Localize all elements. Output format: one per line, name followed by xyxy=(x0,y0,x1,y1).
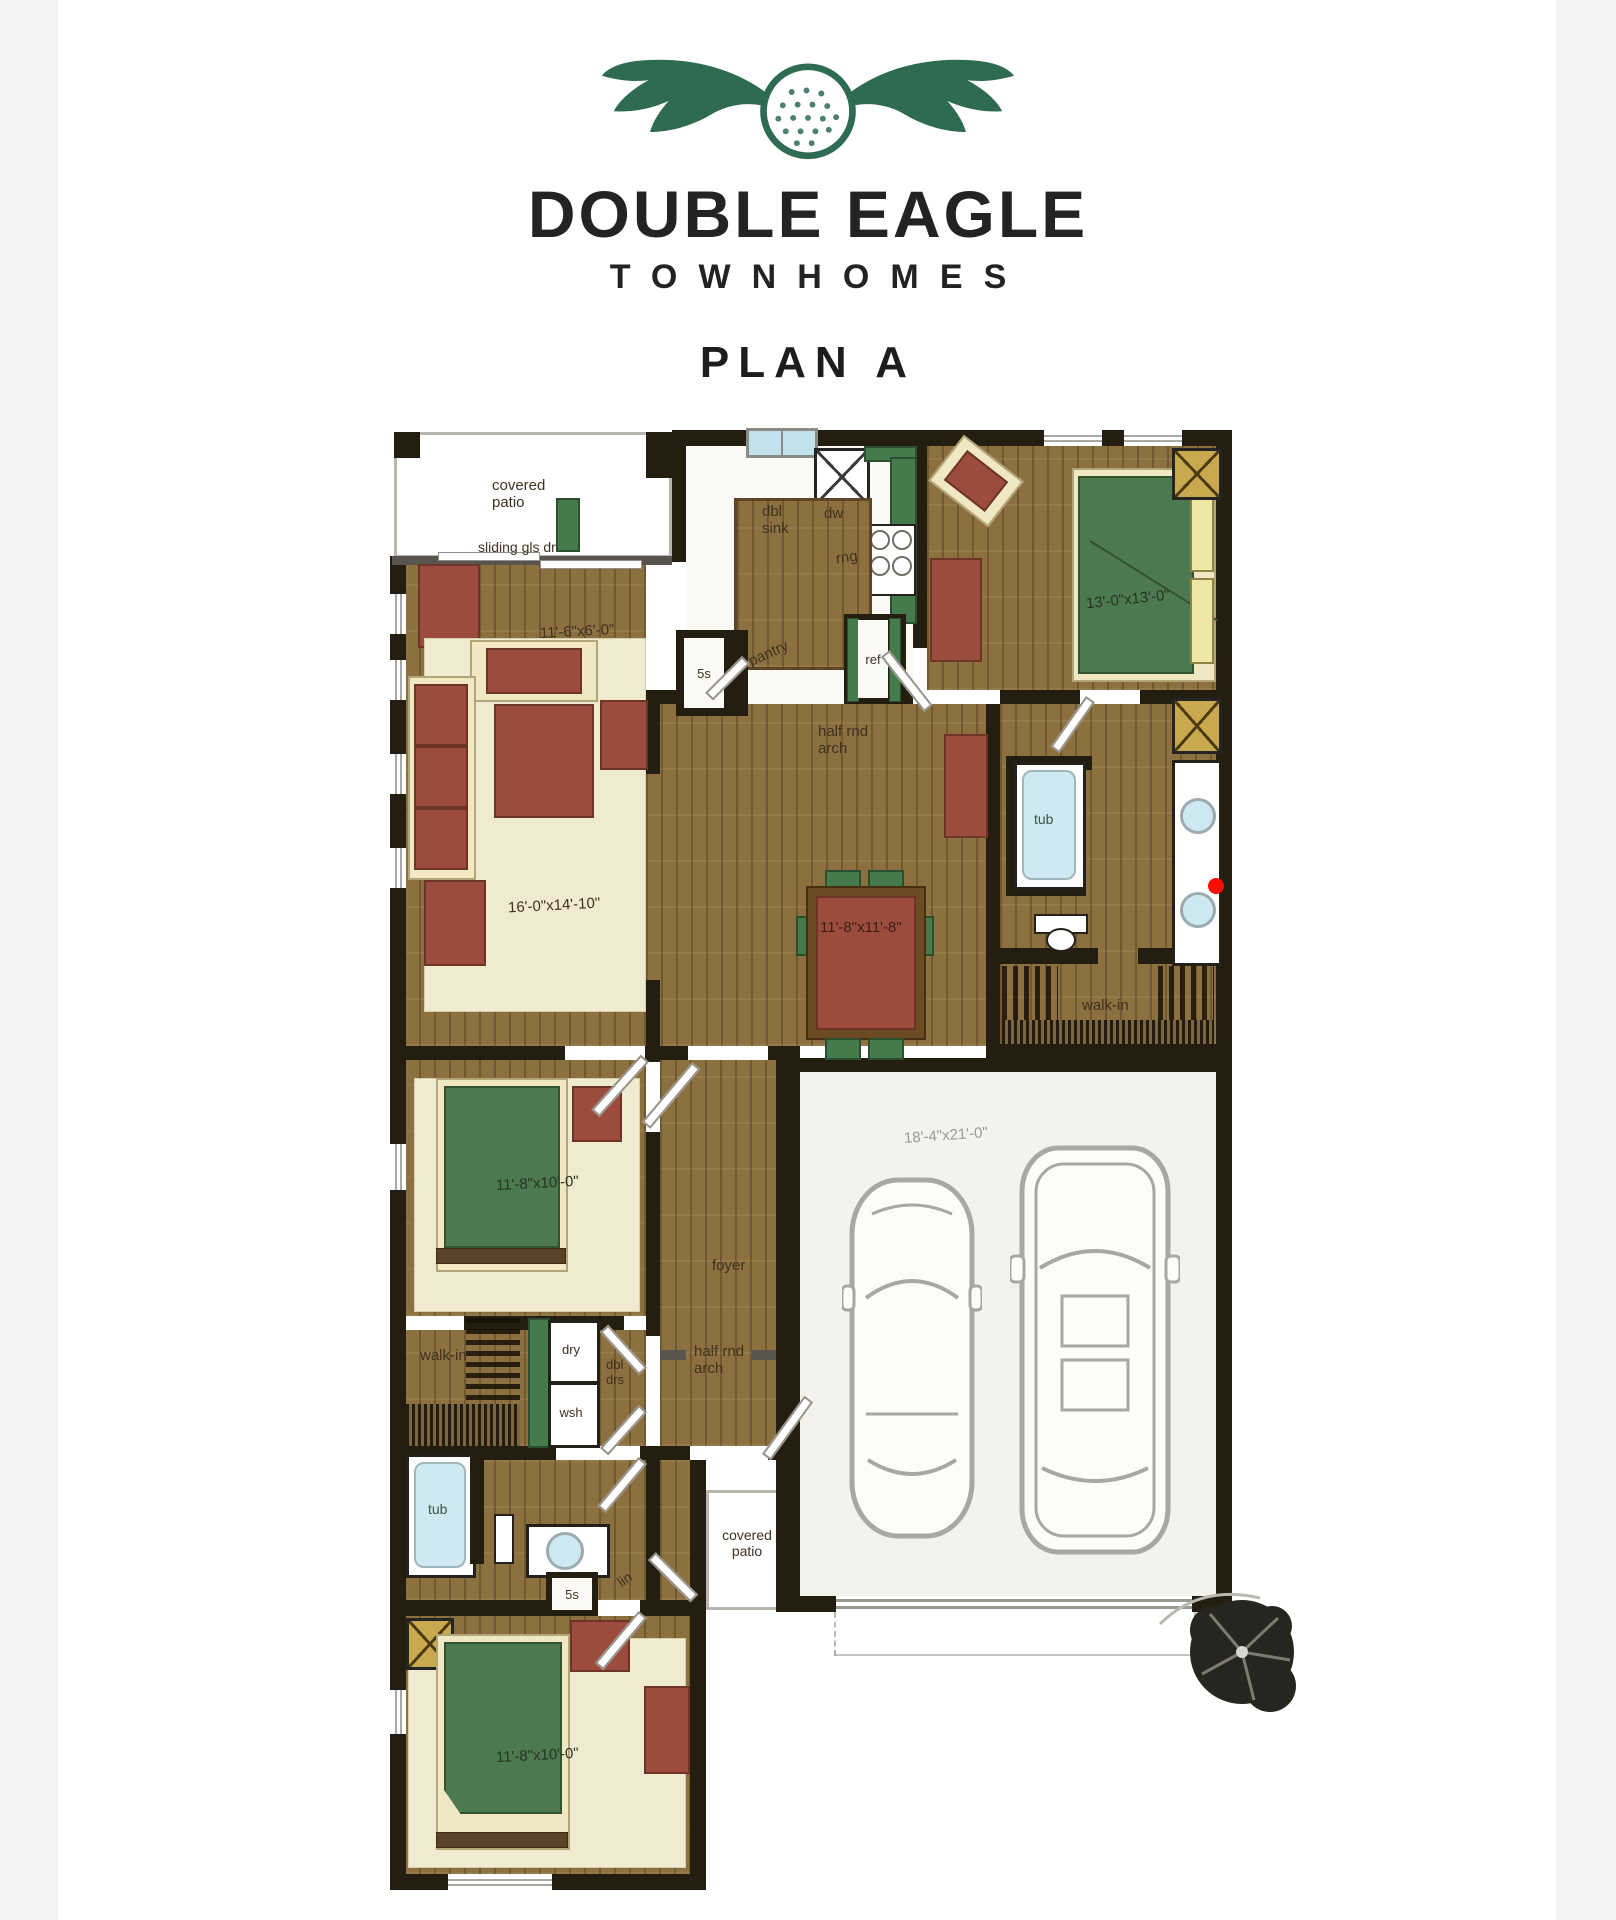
burner-icon xyxy=(892,530,912,550)
wall-patio-kitchen xyxy=(672,430,686,562)
coffee-table xyxy=(494,704,594,818)
wall-post xyxy=(394,432,420,458)
living-window xyxy=(390,848,406,888)
hanging-clothes xyxy=(1002,1020,1214,1044)
wall-bedroom2-top xyxy=(645,1046,660,1060)
living-window xyxy=(390,660,406,700)
bath2-sink xyxy=(546,1532,584,1570)
dining-dimensions: 11'-8"x11'-8" xyxy=(820,920,902,937)
garage-door xyxy=(836,1599,1192,1602)
wall-hall-top xyxy=(768,1046,776,1060)
washer-label: wsh xyxy=(548,1382,594,1442)
nook-window xyxy=(390,594,406,634)
brand-subtitle: TOWNHOMES xyxy=(0,258,1616,297)
foyer-label: foyer xyxy=(712,1258,745,1275)
dining-chair xyxy=(825,1038,861,1060)
wall-masterbath-top xyxy=(1000,690,1080,704)
foyer-arch-label: half rndarch xyxy=(694,1344,744,1378)
wall-hall-patio xyxy=(690,1460,706,1600)
sofa-cushion xyxy=(414,746,468,808)
kitchen-window xyxy=(746,428,818,458)
half-round-arch-label: half rndarch xyxy=(818,724,868,758)
wall-garage-bottom xyxy=(800,1596,836,1612)
wall-bedroom2-top xyxy=(390,1046,565,1060)
toilet xyxy=(494,1514,514,1564)
burner-icon xyxy=(892,556,912,576)
wall-hall-top xyxy=(660,1046,688,1060)
tv xyxy=(486,648,582,694)
dining-table-top xyxy=(816,896,916,1030)
bedroom3-bed xyxy=(444,1642,562,1814)
armchair xyxy=(424,880,486,966)
shelves-label: 5s xyxy=(684,638,724,708)
hanging-clothes xyxy=(406,1404,520,1446)
wall-hall-left xyxy=(646,1132,660,1336)
vanity-sink xyxy=(1180,892,1216,928)
burner-icon xyxy=(870,556,890,576)
living-window xyxy=(390,754,406,794)
sofa-cushion xyxy=(414,684,468,746)
dining-hutch xyxy=(944,734,988,838)
bedroom3-bottom-window xyxy=(448,1874,552,1890)
laundry-side-panel xyxy=(528,1318,550,1448)
wall-tub-divider xyxy=(470,1454,484,1564)
master-bed xyxy=(1078,476,1194,674)
wall-arch-stub xyxy=(660,1350,686,1360)
wall-bedroom3-right xyxy=(690,1600,706,1890)
wall-garage-top xyxy=(800,1058,1216,1072)
brand-name: DOUBLE EAGLE xyxy=(0,176,1616,252)
wall-post xyxy=(646,432,674,478)
dbl-sink-label: dblsink xyxy=(762,504,789,538)
pillow xyxy=(1190,578,1214,664)
dbl-doors-label: dbldrs xyxy=(606,1358,624,1387)
dishwasher-label: dw xyxy=(824,506,843,523)
bedroom3-headboard xyxy=(436,1832,568,1848)
sliding-door-panel xyxy=(540,560,642,569)
plan-title: PLAN A xyxy=(0,338,1616,388)
master-nightstand xyxy=(1172,448,1222,500)
wall-bedroom3-top xyxy=(640,1600,706,1616)
master-nightstand xyxy=(1172,698,1222,754)
wall-arch-stub xyxy=(752,1350,776,1360)
wall-stub xyxy=(646,704,660,774)
bedroom3-window xyxy=(390,1690,406,1734)
toilet-bowl xyxy=(1046,928,1076,952)
foyer-floor xyxy=(660,1060,776,1446)
bath2-shelves-label: 5s xyxy=(552,1578,592,1610)
wall-right-outer xyxy=(1216,430,1232,1612)
wall-bath2-right xyxy=(646,1460,660,1600)
master-dresser xyxy=(930,558,982,662)
red-marker-dot xyxy=(1208,878,1224,894)
wall-garage-left xyxy=(776,1046,800,1612)
covered-patio-top-label: coveredpatio xyxy=(492,478,545,512)
dining-chair xyxy=(868,1038,904,1060)
master-window xyxy=(1044,430,1102,446)
range-label: rng xyxy=(835,549,859,569)
tree-icon xyxy=(1150,1564,1314,1744)
winged-golf-ball-logo xyxy=(593,34,1023,184)
bedroom2-window xyxy=(390,1144,406,1190)
nook-plant xyxy=(556,498,580,552)
garage-apron-line xyxy=(834,1654,1196,1656)
covered-patio-bottom-label: coveredpatio xyxy=(718,1528,776,1559)
vanity-sink xyxy=(1180,798,1216,834)
master-tub-label: tub xyxy=(1034,812,1053,828)
walkin2-label: walk-in xyxy=(420,1348,467,1365)
accent-chair xyxy=(600,700,648,770)
wall-bedroom3-top xyxy=(390,1600,556,1616)
wall-stub xyxy=(646,980,660,1046)
sofa-cushion xyxy=(414,808,468,870)
nook-cabinet xyxy=(418,564,480,648)
bath2-tub-label: tub xyxy=(428,1502,447,1518)
car-suv xyxy=(1010,1138,1180,1562)
wall-masterbath-bottom xyxy=(1000,948,1098,964)
master-vanity xyxy=(1172,760,1222,966)
master-window xyxy=(1124,430,1182,446)
dryer-label: dry xyxy=(548,1320,594,1378)
bedroom2-bed xyxy=(444,1086,560,1248)
garage-door xyxy=(836,1606,1192,1609)
wall-dining-masterbath xyxy=(986,704,1000,1046)
sliding-door-label: sliding gls dr xyxy=(478,540,556,556)
bedroom3-dresser xyxy=(644,1686,690,1774)
car-sedan xyxy=(842,1170,982,1546)
garage-door-extension-line xyxy=(834,1612,836,1656)
master-walkin-label: walk-in xyxy=(1082,998,1129,1015)
burner-icon xyxy=(870,530,890,550)
wall-foyer-bottom xyxy=(646,1446,690,1460)
bedroom2-footboard xyxy=(436,1248,566,1264)
